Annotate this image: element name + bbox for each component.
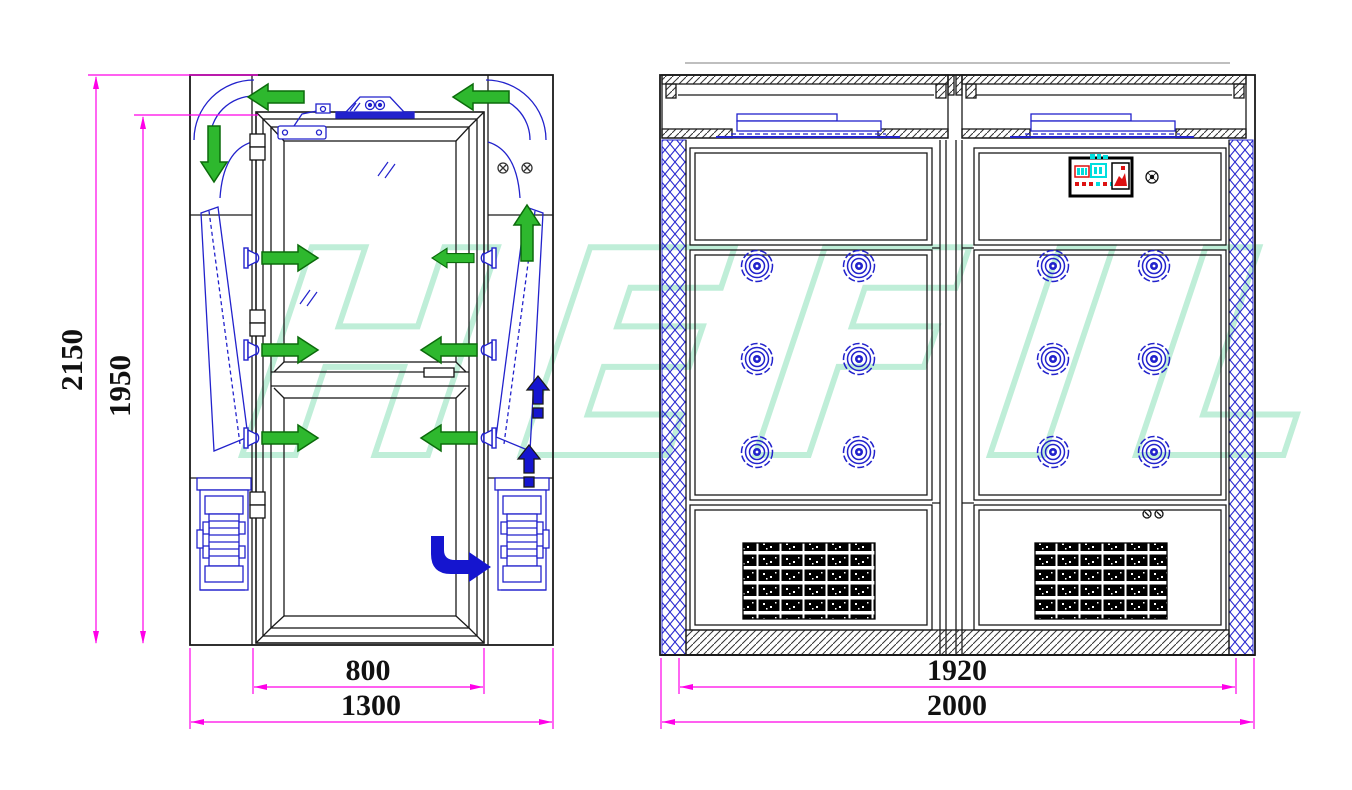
airflow-arrow-left-icon: [453, 84, 509, 110]
dim-label-overall-height: 2150: [54, 329, 89, 391]
hepa-filter: [1010, 114, 1194, 137]
plenum-left: [662, 75, 948, 138]
digital-display: [1091, 164, 1106, 177]
blower-fan: [197, 478, 251, 590]
airflow-arrow-left-icon: [248, 84, 304, 110]
blower-fan: [495, 478, 549, 590]
airflow-arrow-down-icon: [201, 126, 227, 182]
dim-label-door-width: 800: [346, 654, 391, 687]
hepa-filter: [716, 114, 900, 137]
return-grille: [743, 543, 875, 619]
dim-label-door-height: 1950: [102, 355, 137, 417]
dim-label-chamber-width: 1920: [927, 654, 987, 687]
glass-mark-icon: [378, 162, 395, 178]
return-air-arrow-curved-icon: [431, 536, 491, 582]
dim-label-interior-overall-width: 2000: [927, 689, 987, 722]
door-closer: [278, 104, 330, 139]
wall-insulation-strip: [1229, 140, 1253, 655]
dim-label-front-overall-width: 1300: [341, 689, 401, 722]
wall-insulation-strip: [662, 140, 686, 655]
floor-hatch: [686, 630, 1229, 655]
interlock-indicator: [336, 97, 414, 118]
control-panel: [1070, 154, 1132, 196]
plenum-right: [962, 75, 1246, 138]
emergency-button: [1146, 171, 1158, 183]
return-grille: [1035, 543, 1167, 619]
air-shower-technical-drawing: HEFIL: [0, 0, 1352, 790]
door-handle: [424, 368, 454, 377]
